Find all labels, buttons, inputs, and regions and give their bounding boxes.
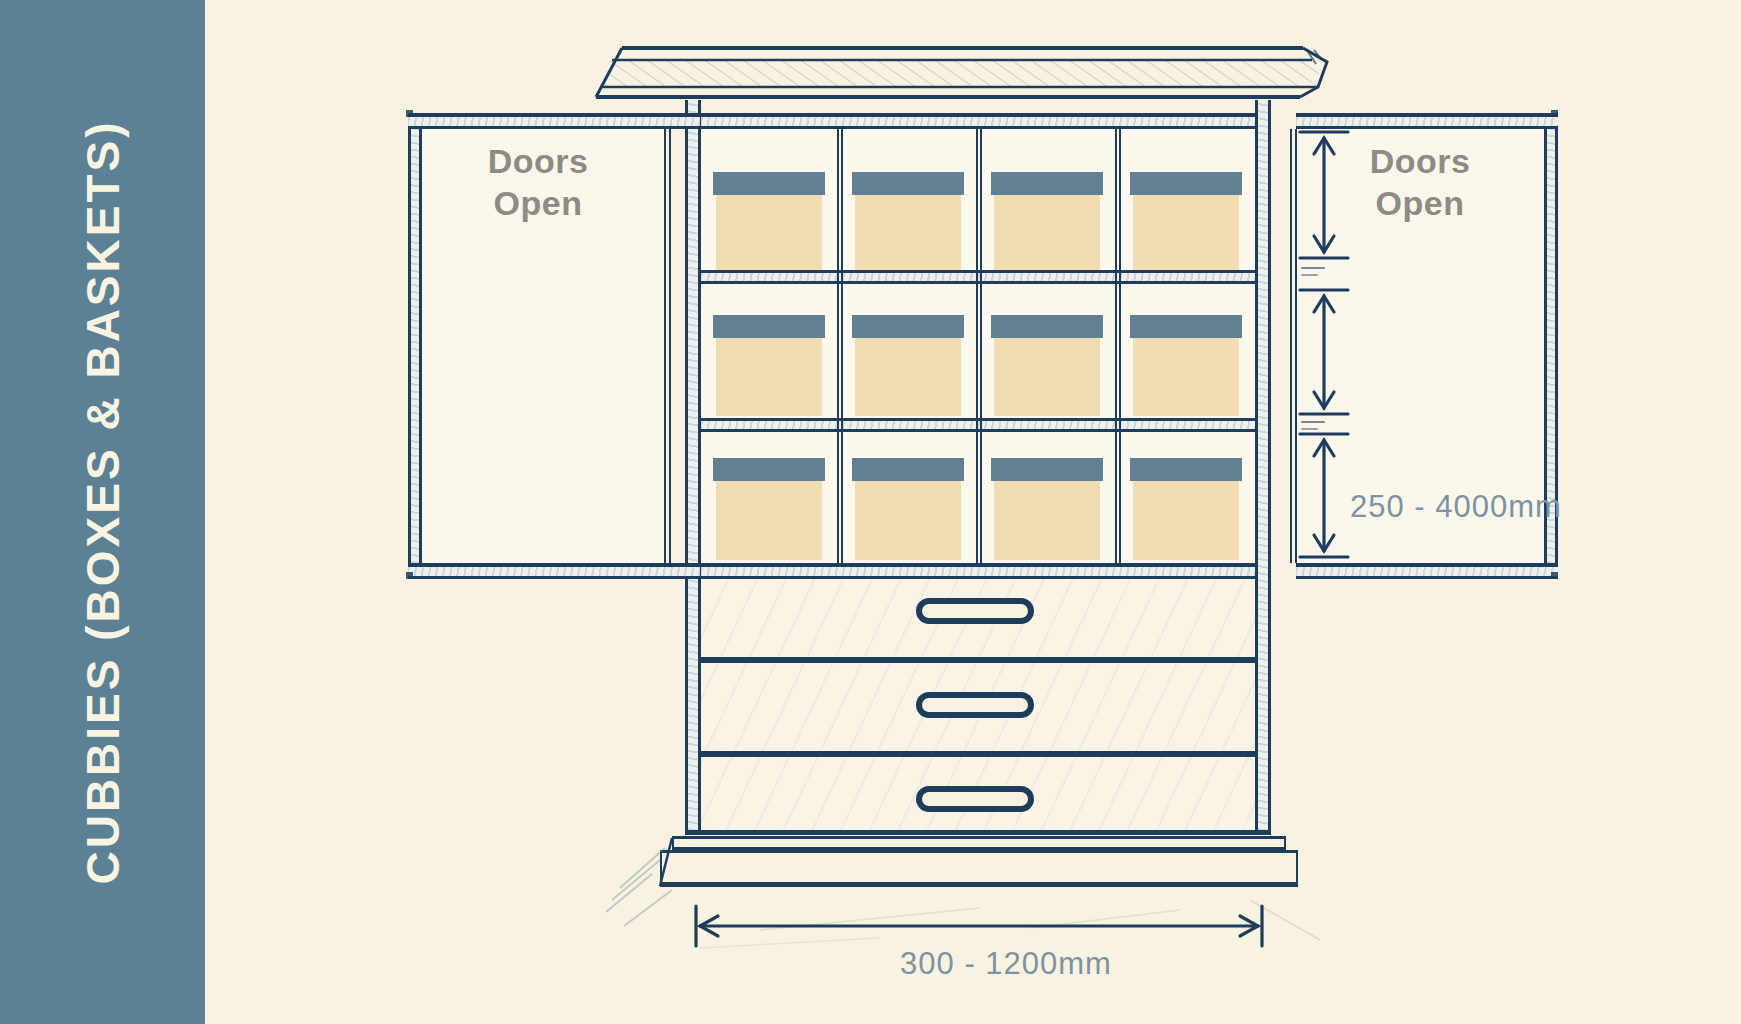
cubby-opening	[701, 129, 1255, 563]
drawer-section	[701, 579, 1255, 830]
cubby-bottom-rail	[701, 563, 1255, 579]
door-left-label-line1: Doors	[410, 140, 666, 182]
door-left-top-corner-mark	[406, 110, 413, 117]
height-dimension-label: 250 - 4000mm	[1350, 489, 1562, 525]
door-left-label-line2: Open	[410, 182, 666, 224]
door-left-label: Doors Open	[410, 140, 666, 224]
door-right-top-corner-mark	[1551, 110, 1558, 117]
cabinet-right-side	[1255, 100, 1271, 830]
cabinet-left-side	[685, 100, 701, 830]
door-left-bottom-rail	[408, 563, 700, 579]
door-right-bottom-corner-mark	[1551, 572, 1558, 579]
cubbies-dimension-diagram: CUBBIES (BOXES & BASKETS)	[0, 0, 1741, 1024]
crown-molding-illustration	[560, 40, 1360, 110]
cabinet-top-rail	[701, 113, 1255, 129]
width-dimension-label: 300 - 1200mm	[856, 946, 1156, 982]
door-left-top-rail	[408, 113, 700, 129]
door-left-bottom-corner-mark	[406, 572, 413, 579]
title-band: CUBBIES (BOXES & BASKETS)	[0, 0, 205, 1024]
page-title: CUBBIES (BOXES & BASKETS)	[76, 119, 130, 884]
